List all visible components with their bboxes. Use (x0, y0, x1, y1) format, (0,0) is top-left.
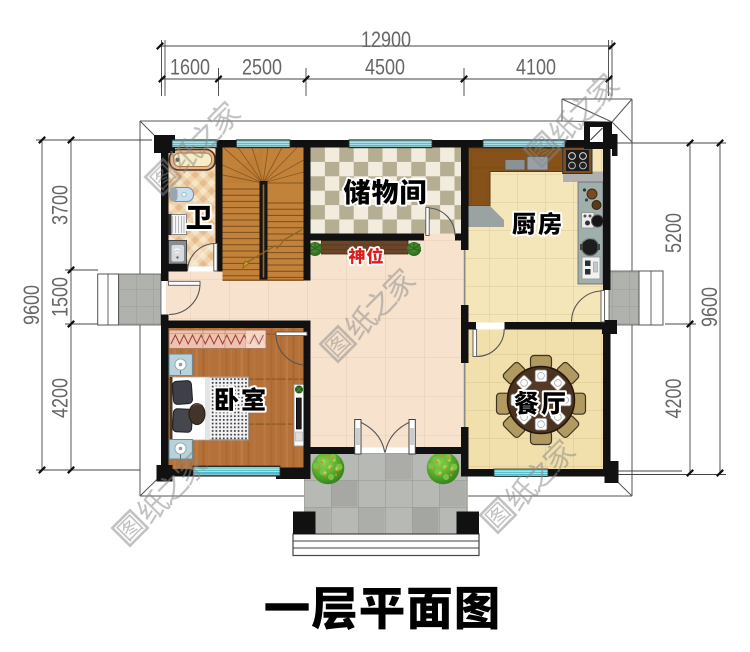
svg-text:9600: 9600 (19, 285, 44, 325)
svg-text:4500: 4500 (365, 55, 405, 80)
svg-text:9600: 9600 (697, 287, 722, 327)
svg-text:2500: 2500 (242, 55, 282, 80)
svg-text:1500: 1500 (48, 277, 73, 317)
svg-text:4100: 4100 (516, 55, 556, 80)
svg-text:1600: 1600 (170, 55, 210, 80)
svg-text:4200: 4200 (48, 378, 73, 418)
svg-text:12900: 12900 (361, 27, 411, 52)
svg-text:4200: 4200 (661, 379, 686, 419)
svg-text:5200: 5200 (661, 213, 686, 253)
svg-text:3700: 3700 (48, 185, 73, 225)
